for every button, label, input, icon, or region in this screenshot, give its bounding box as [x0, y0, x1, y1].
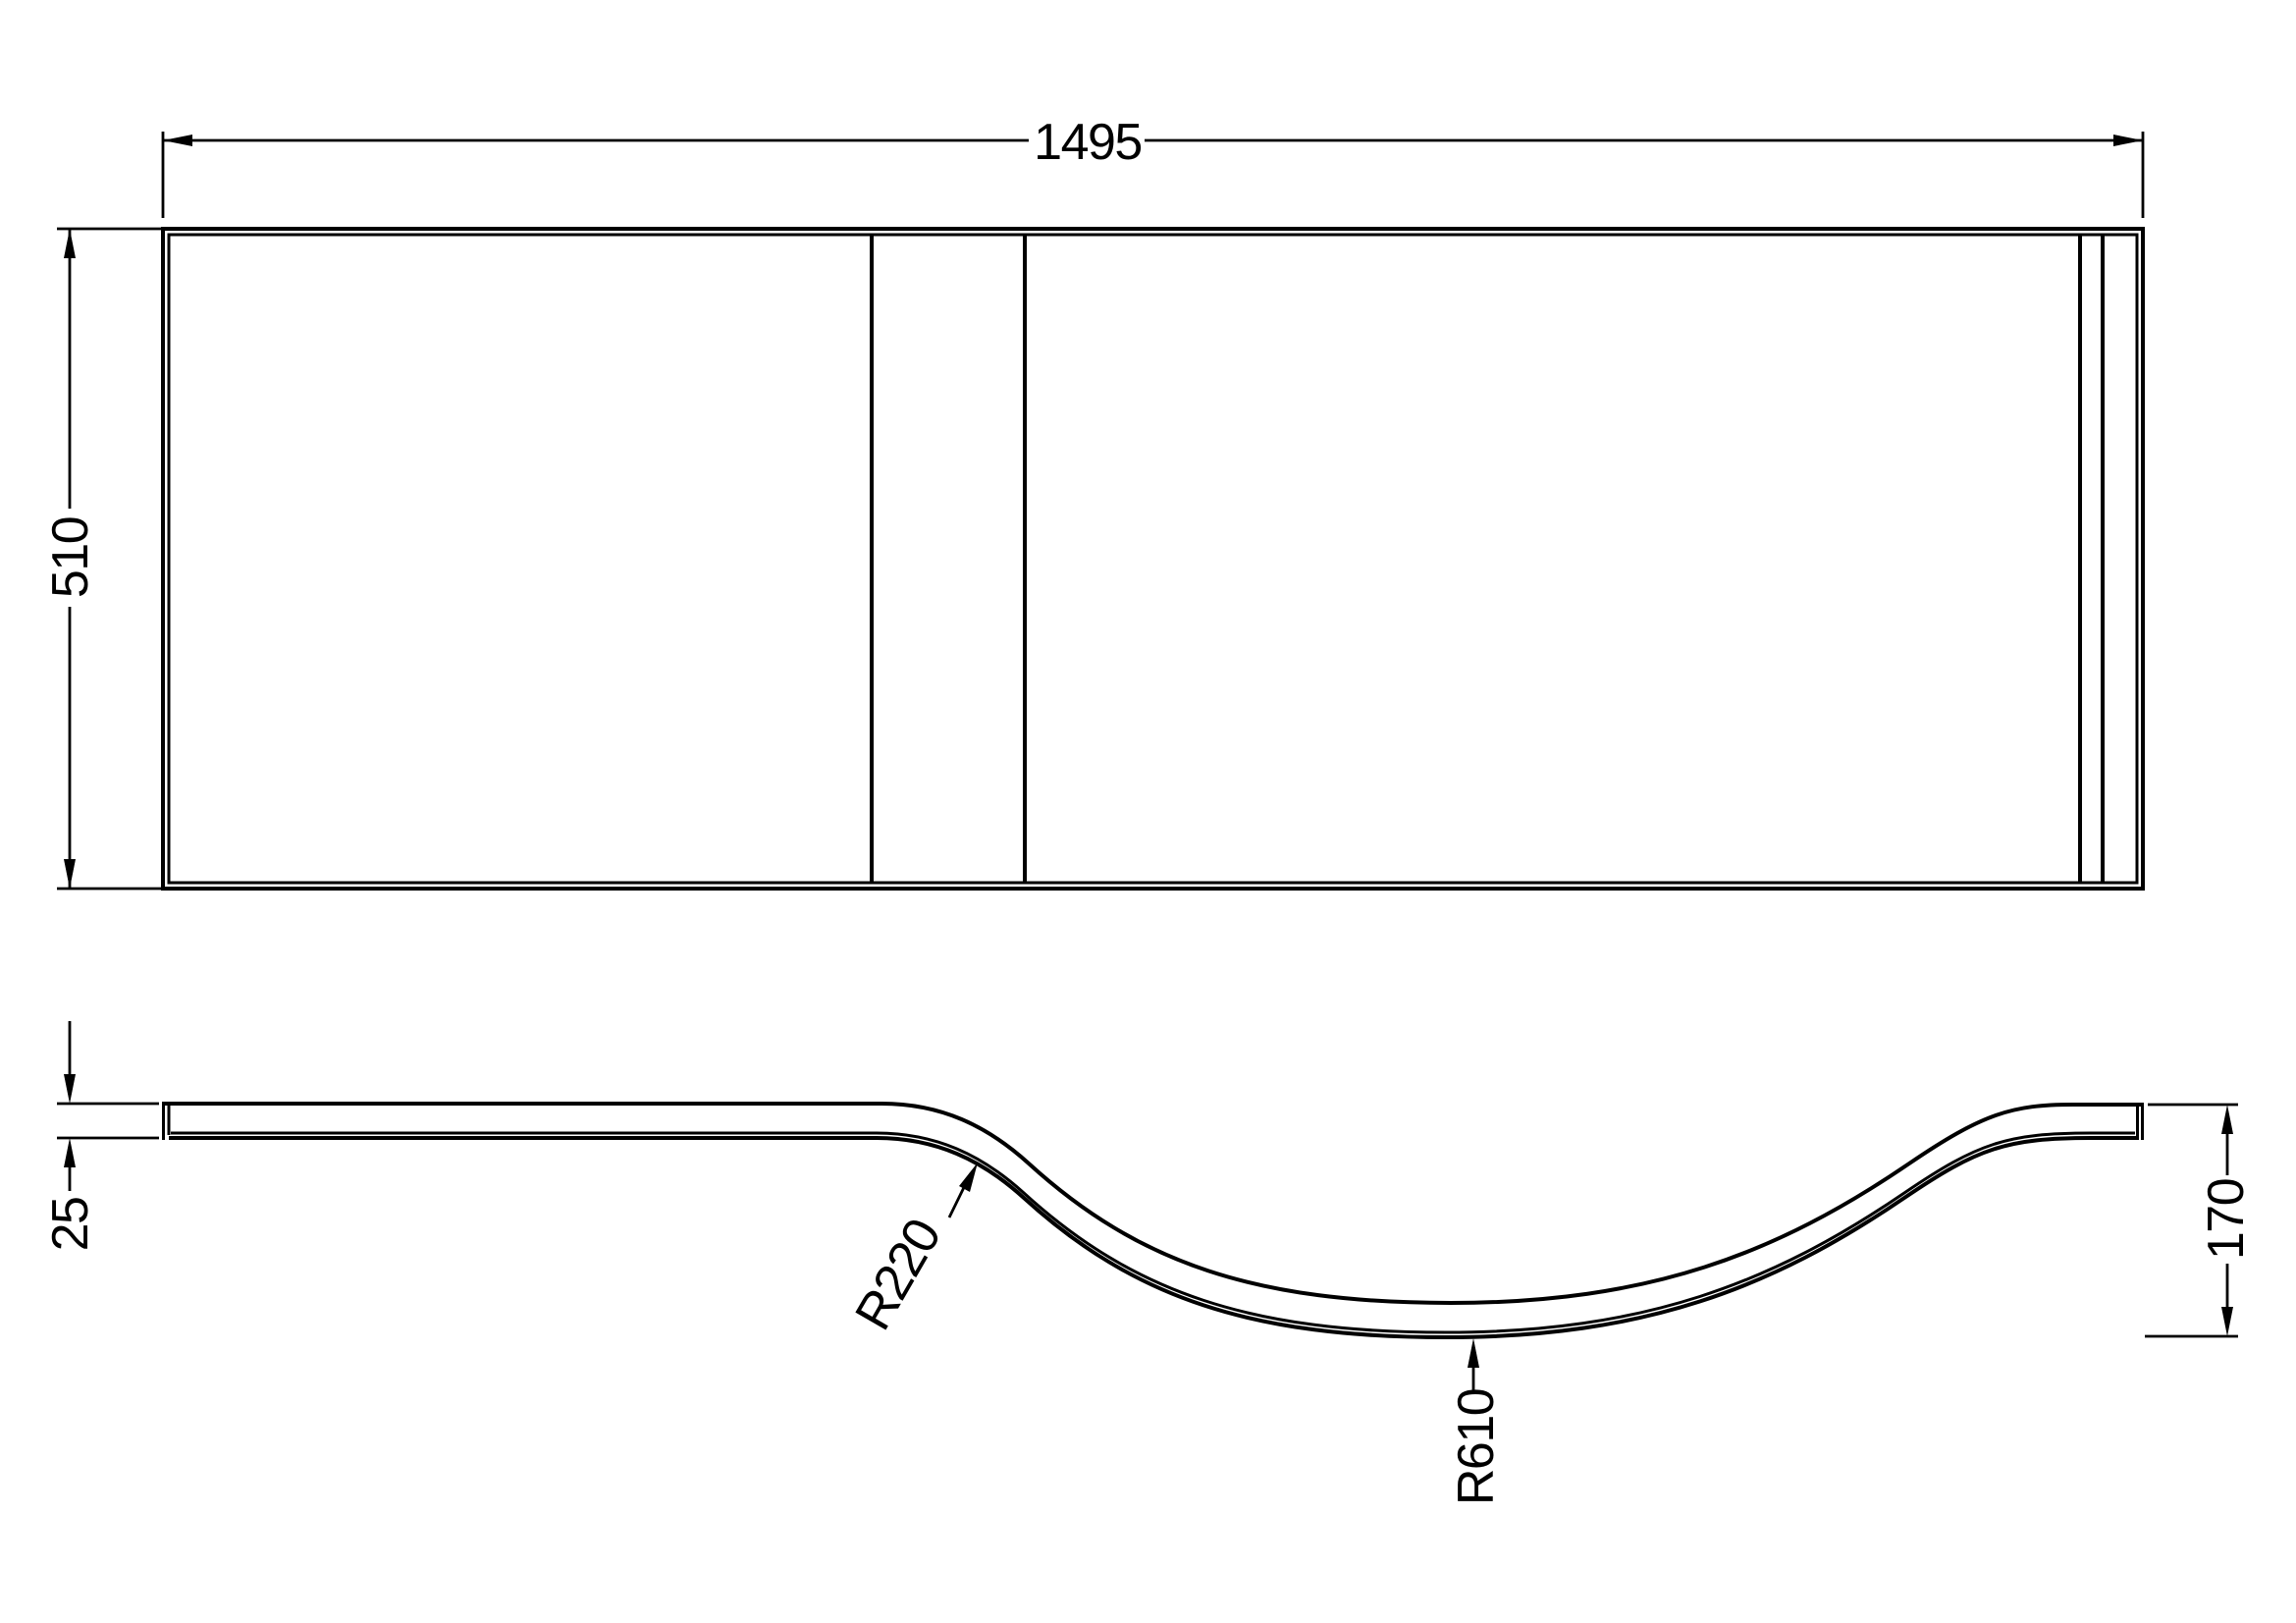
dim-depth-label: 170: [2198, 1179, 2255, 1260]
dim-width-label: 1495: [1034, 114, 1142, 171]
leader-radius-transition-arrow: [959, 1163, 978, 1192]
dim-height-arrow-bottom: [64, 859, 76, 889]
leader-radius-transition: R220: [844, 1163, 978, 1339]
dim-thickness-arrow-bottom: [64, 1138, 76, 1167]
panel-outline: [163, 229, 2143, 889]
leader-radius-transition-label: R220: [844, 1211, 951, 1339]
dim-thickness-label: 25: [42, 1198, 99, 1252]
dim-depth: 170: [2145, 1105, 2255, 1336]
leader-radius-bowl-label: R610: [1448, 1389, 1505, 1505]
dim-thickness-extension-lines: [57, 1104, 159, 1138]
dim-width-arrow-right: [2113, 135, 2143, 146]
profile-left-end-cap: [164, 1102, 170, 1140]
bath-panel-drawing: 1495 510 25: [0, 0, 2296, 1623]
plan-profile-view: [163, 1102, 2143, 1337]
profile-right-end-cap: [2138, 1103, 2143, 1140]
dim-height-arrow-top: [64, 229, 76, 258]
dim-width-arrow-left: [163, 135, 192, 146]
profile-bottom-line-outer: [169, 1138, 2137, 1337]
panel-inner-edge: [169, 235, 2137, 883]
dim-height-label: 510: [42, 517, 99, 598]
profile-bottom-line-inner: [171, 1133, 2135, 1332]
front-elevation-view: [163, 229, 2143, 889]
dim-thickness: 25: [42, 1021, 159, 1251]
dim-height: 510: [42, 229, 163, 889]
dim-depth-arrow-top: [2221, 1105, 2233, 1134]
technical-drawing-canvas: 1495 510 25: [0, 0, 2296, 1623]
dim-width: 1495: [163, 114, 2143, 218]
dim-depth-arrow-bottom: [2221, 1307, 2233, 1336]
dim-width-extension-lines: [163, 132, 2143, 218]
leader-radius-bowl-arrow: [1468, 1338, 1479, 1368]
dim-thickness-arrow-top: [64, 1074, 76, 1104]
leader-radius-bowl: R610: [1448, 1338, 1505, 1505]
